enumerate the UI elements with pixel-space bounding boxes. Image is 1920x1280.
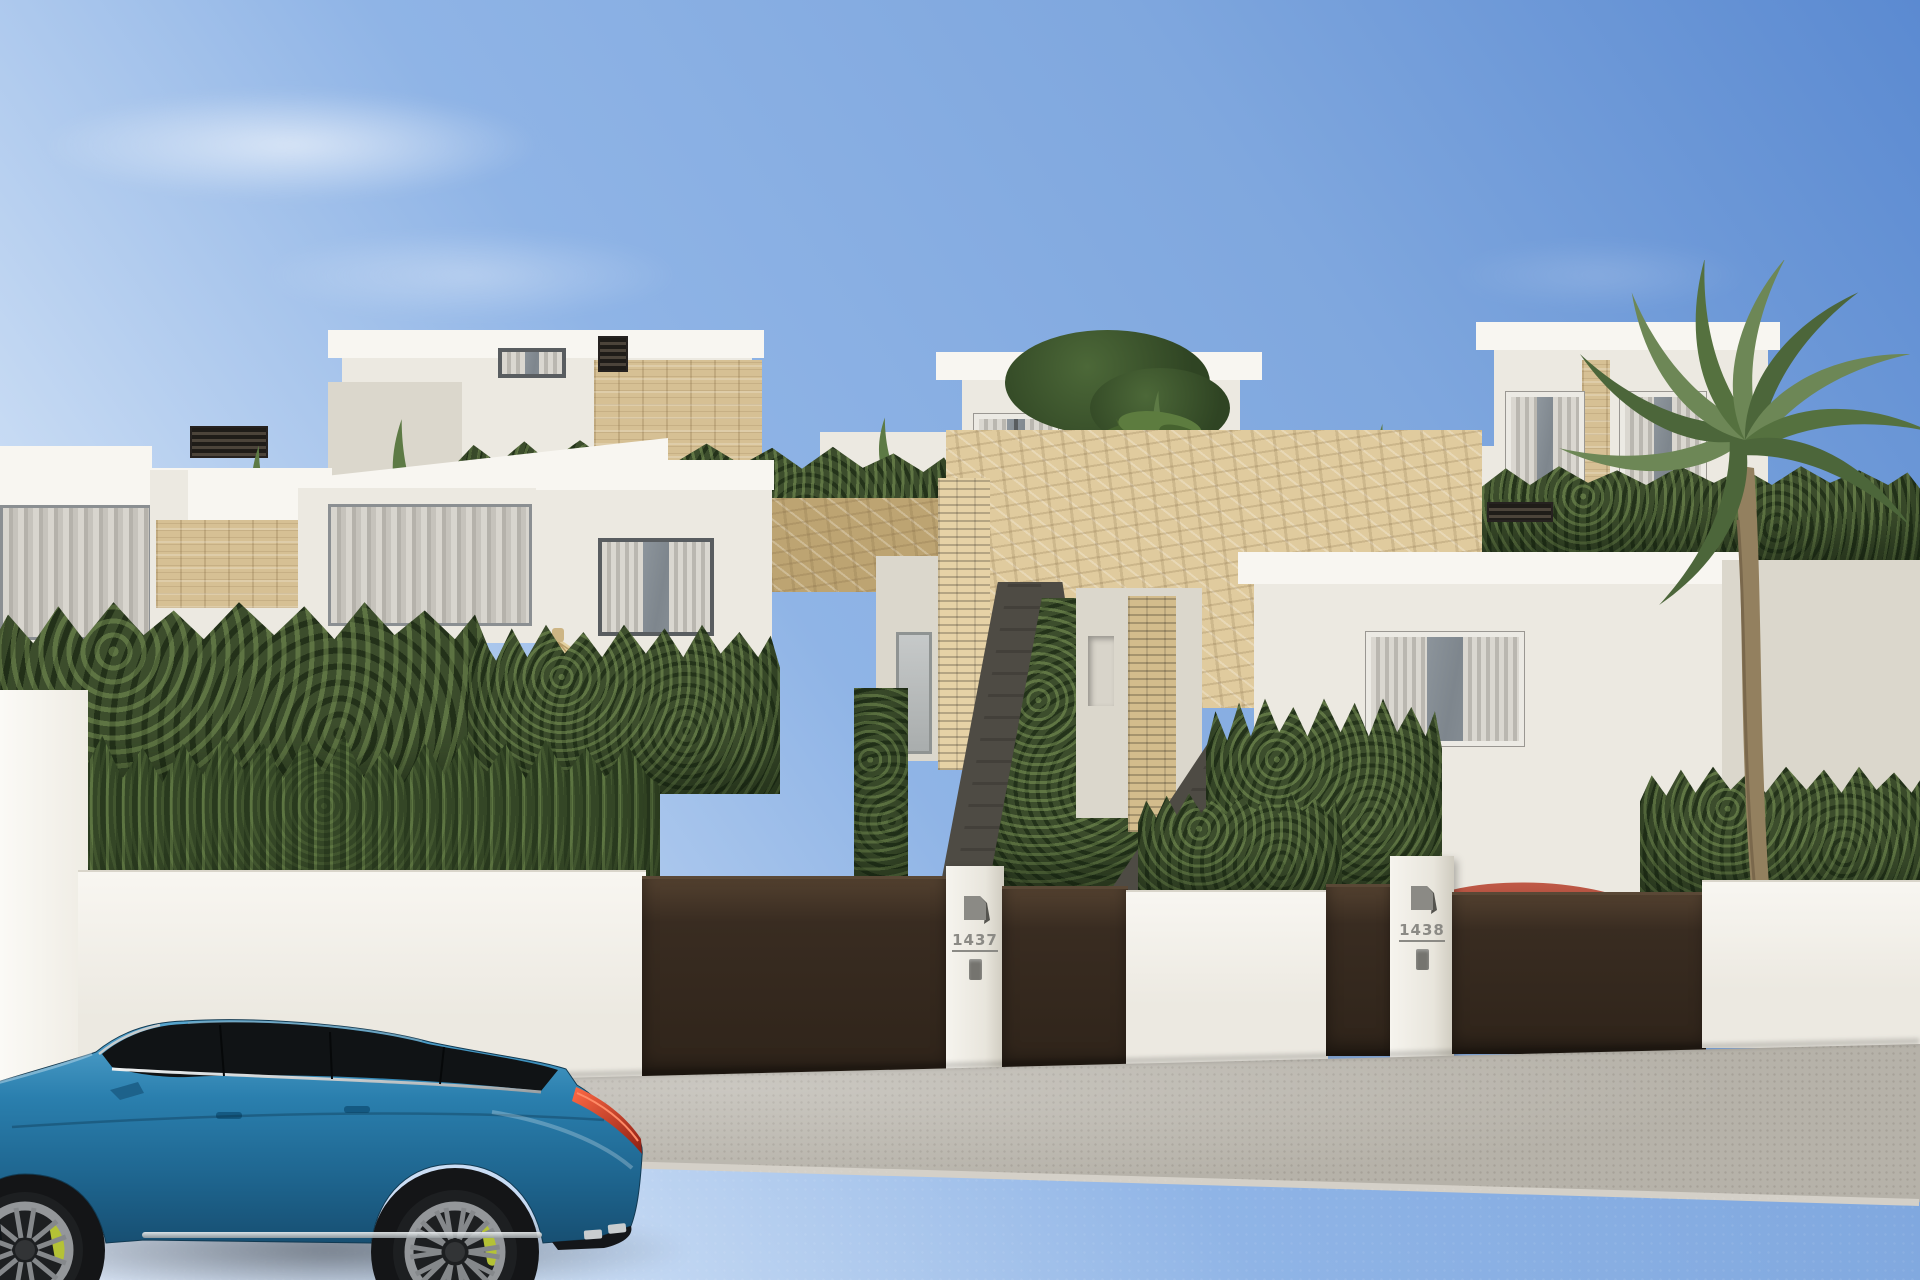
gate-1437-left-panel	[642, 876, 948, 1076]
exhaust-tip	[584, 1229, 603, 1239]
house-number: 1438	[1399, 923, 1445, 942]
mid-villa-window	[598, 538, 714, 636]
curtain	[669, 542, 710, 632]
gate-1437-right-panel	[1002, 886, 1128, 1070]
curtain	[1463, 637, 1519, 741]
curtain	[502, 352, 525, 374]
builder-logo-icon	[1407, 884, 1437, 916]
blue-porsche-car	[0, 992, 664, 1280]
intercom-icon	[969, 959, 982, 980]
door-handle	[344, 1106, 370, 1113]
gate-1438-right-panel	[1452, 892, 1706, 1054]
gate-1438-left-panel	[1326, 884, 1394, 1056]
perimeter-wall	[1702, 880, 1920, 1048]
curtain	[602, 542, 643, 632]
gate-pillar-1437: 1437	[946, 866, 1004, 1080]
curtain	[539, 352, 562, 374]
mid-left-villa-window	[328, 504, 532, 626]
house-number: 1437	[952, 933, 998, 952]
large-palm-tree	[1530, 260, 1920, 920]
intercom-icon	[1416, 949, 1429, 970]
villa-street-render: 1437 1438	[0, 0, 1920, 1280]
gate-pillar-1438: 1438	[1390, 856, 1454, 1064]
wall-niche	[1088, 636, 1114, 706]
vent-louver	[598, 336, 628, 372]
perimeter-wall	[1126, 890, 1328, 1066]
exhaust-tip	[608, 1223, 627, 1234]
upper-left-villa-window	[498, 348, 566, 378]
mid-villa-roof	[536, 460, 774, 490]
cloud	[40, 90, 540, 200]
garden-hedge	[854, 688, 908, 893]
stone-pillar	[1128, 596, 1176, 832]
builder-logo-icon	[960, 894, 990, 926]
